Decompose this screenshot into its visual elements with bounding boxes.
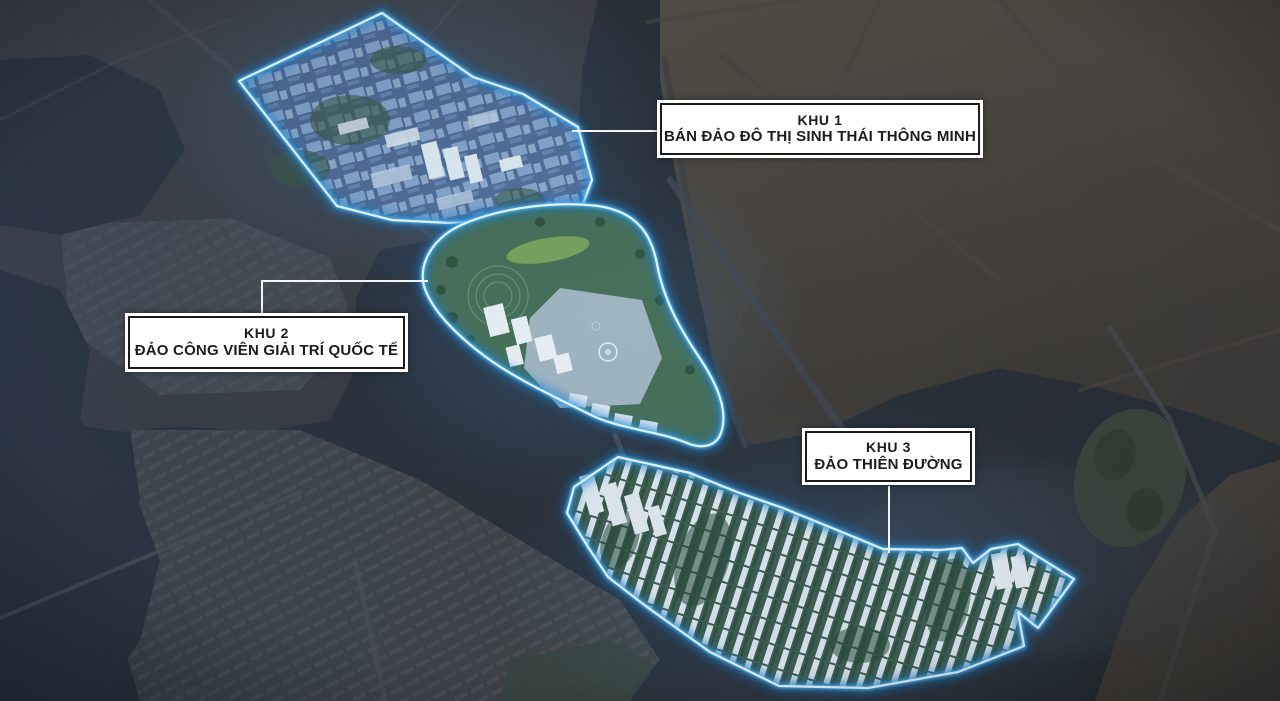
zone-label-khu-3-title: KHU 3: [866, 439, 911, 455]
zone-label-khu-3-frame: KHU 3 ĐẢO THIÊN ĐƯỜNG: [805, 431, 972, 482]
zone-label-khu-2-frame: KHU 2 ĐẢO CÔNG VIÊN GIẢI TRÍ QUỐC TẾ: [128, 316, 405, 369]
zone-label-khu-2-title: KHU 2: [244, 325, 289, 341]
zone-label-khu-1-title: KHU 1: [797, 112, 842, 128]
masterplan-scene: KHU 1 BÁN ĐẢO ĐÔ THỊ SINH THÁI THÔNG MIN…: [0, 0, 1280, 701]
zone-label-khu-3: KHU 3 ĐẢO THIÊN ĐƯỜNG: [802, 428, 975, 485]
zone-label-khu-2: KHU 2 ĐẢO CÔNG VIÊN GIẢI TRÍ QUỐC TẾ: [125, 313, 408, 372]
zone-label-khu-1-frame: KHU 1 BÁN ĐẢO ĐÔ THỊ SINH THÁI THÔNG MIN…: [660, 103, 980, 155]
zone-label-khu-3-subtitle: ĐẢO THIÊN ĐƯỜNG: [814, 456, 962, 474]
zone-label-khu-1-subtitle: BÁN ĐẢO ĐÔ THỊ SINH THÁI THÔNG MINH: [664, 128, 976, 146]
zone-label-khu-1: KHU 1 BÁN ĐẢO ĐÔ THỊ SINH THÁI THÔNG MIN…: [657, 100, 983, 158]
zone-label-khu-2-subtitle: ĐẢO CÔNG VIÊN GIẢI TRÍ QUỐC TẾ: [135, 342, 399, 360]
